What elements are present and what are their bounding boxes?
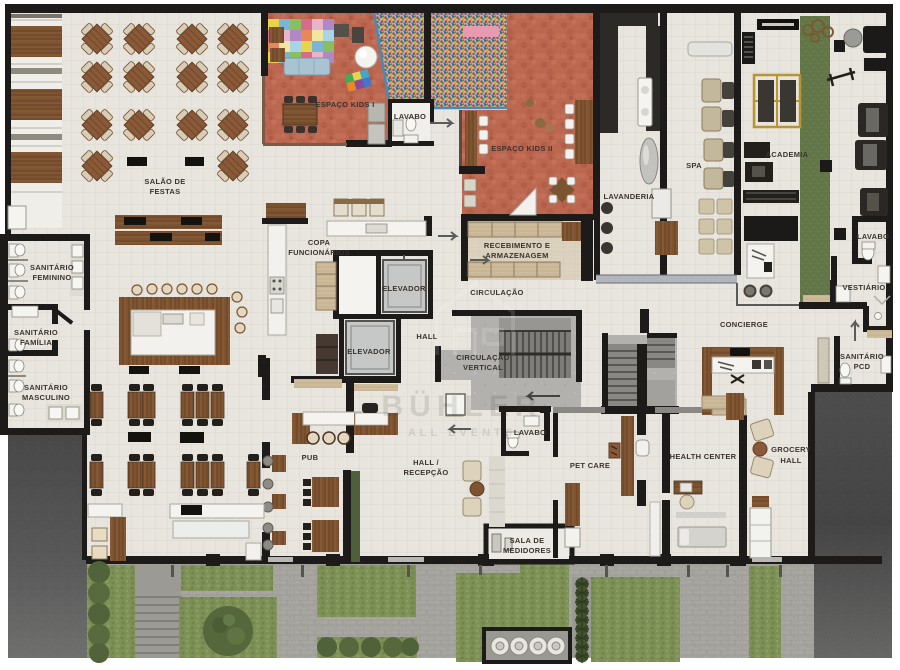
svg-text:SANITÁRIO: SANITÁRIO (30, 263, 74, 272)
svg-text:RECEPÇÃO: RECEPÇÃO (404, 468, 449, 477)
svg-text:ALL EVENTS: ALL EVENTS (408, 427, 516, 439)
svg-text:SPA: SPA (686, 161, 702, 170)
svg-text:HALL: HALL (780, 456, 801, 465)
svg-text:PET CARE: PET CARE (570, 461, 610, 470)
svg-text:MASCULINO: MASCULINO (22, 393, 70, 402)
svg-text:ARMAZENAGEM: ARMAZENAGEM (485, 251, 548, 260)
svg-text:ESPAÇO KIDS I: ESPAÇO KIDS I (315, 100, 374, 109)
svg-text:HALL /: HALL / (413, 458, 439, 467)
svg-text:FUNCIONÁRIOS: FUNCIONÁRIOS (288, 248, 350, 257)
svg-text:GROCERY: GROCERY (771, 445, 811, 454)
svg-text:ELEVADOR: ELEVADOR (347, 347, 391, 356)
svg-text:LAVABO: LAVABO (394, 112, 426, 121)
svg-text:FEMININO: FEMININO (32, 273, 71, 282)
svg-text:CIRCULAÇÃO: CIRCULAÇÃO (470, 288, 523, 297)
svg-text:LAVABO: LAVABO (514, 428, 546, 437)
svg-text:COPA: COPA (308, 238, 331, 247)
svg-text:VESTIÁRIO: VESTIÁRIO (842, 283, 885, 292)
svg-text:VERTICAL: VERTICAL (463, 363, 503, 372)
svg-text:FAMÍLIA: FAMÍLIA (20, 338, 52, 347)
svg-text:ESPAÇO KIDS II: ESPAÇO KIDS II (491, 144, 553, 153)
svg-text:PUB: PUB (302, 453, 319, 462)
svg-text:SALÃO DE: SALÃO DE (144, 177, 185, 186)
svg-text:LAVABO: LAVABO (857, 232, 889, 241)
svg-text:PCD: PCD (854, 362, 871, 371)
svg-text:CIRCULAÇÃO: CIRCULAÇÃO (456, 353, 509, 362)
svg-text:FESTAS: FESTAS (150, 187, 181, 196)
svg-text:CONCIERGE: CONCIERGE (720, 320, 768, 329)
svg-text:RECEBIMENTO E: RECEBIMENTO E (484, 241, 550, 250)
svg-text:SANITÁRIO: SANITÁRIO (840, 352, 884, 361)
svg-text:SALA DE: SALA DE (510, 536, 545, 545)
svg-text:SANITÁRIO: SANITÁRIO (14, 328, 58, 337)
svg-text:SANITÁRIO: SANITÁRIO (24, 383, 68, 392)
svg-text:LAVANDERIA: LAVANDERIA (603, 192, 654, 201)
svg-text:HEALTH CENTER: HEALTH CENTER (670, 452, 737, 461)
svg-text:BÜHLER: BÜHLER (382, 390, 543, 423)
svg-text:ACADEMIA: ACADEMIA (766, 150, 809, 159)
svg-text:HALL: HALL (416, 332, 437, 341)
svg-text:MEDIDORES: MEDIDORES (503, 546, 551, 555)
svg-text:ELEVADOR: ELEVADOR (382, 284, 426, 293)
